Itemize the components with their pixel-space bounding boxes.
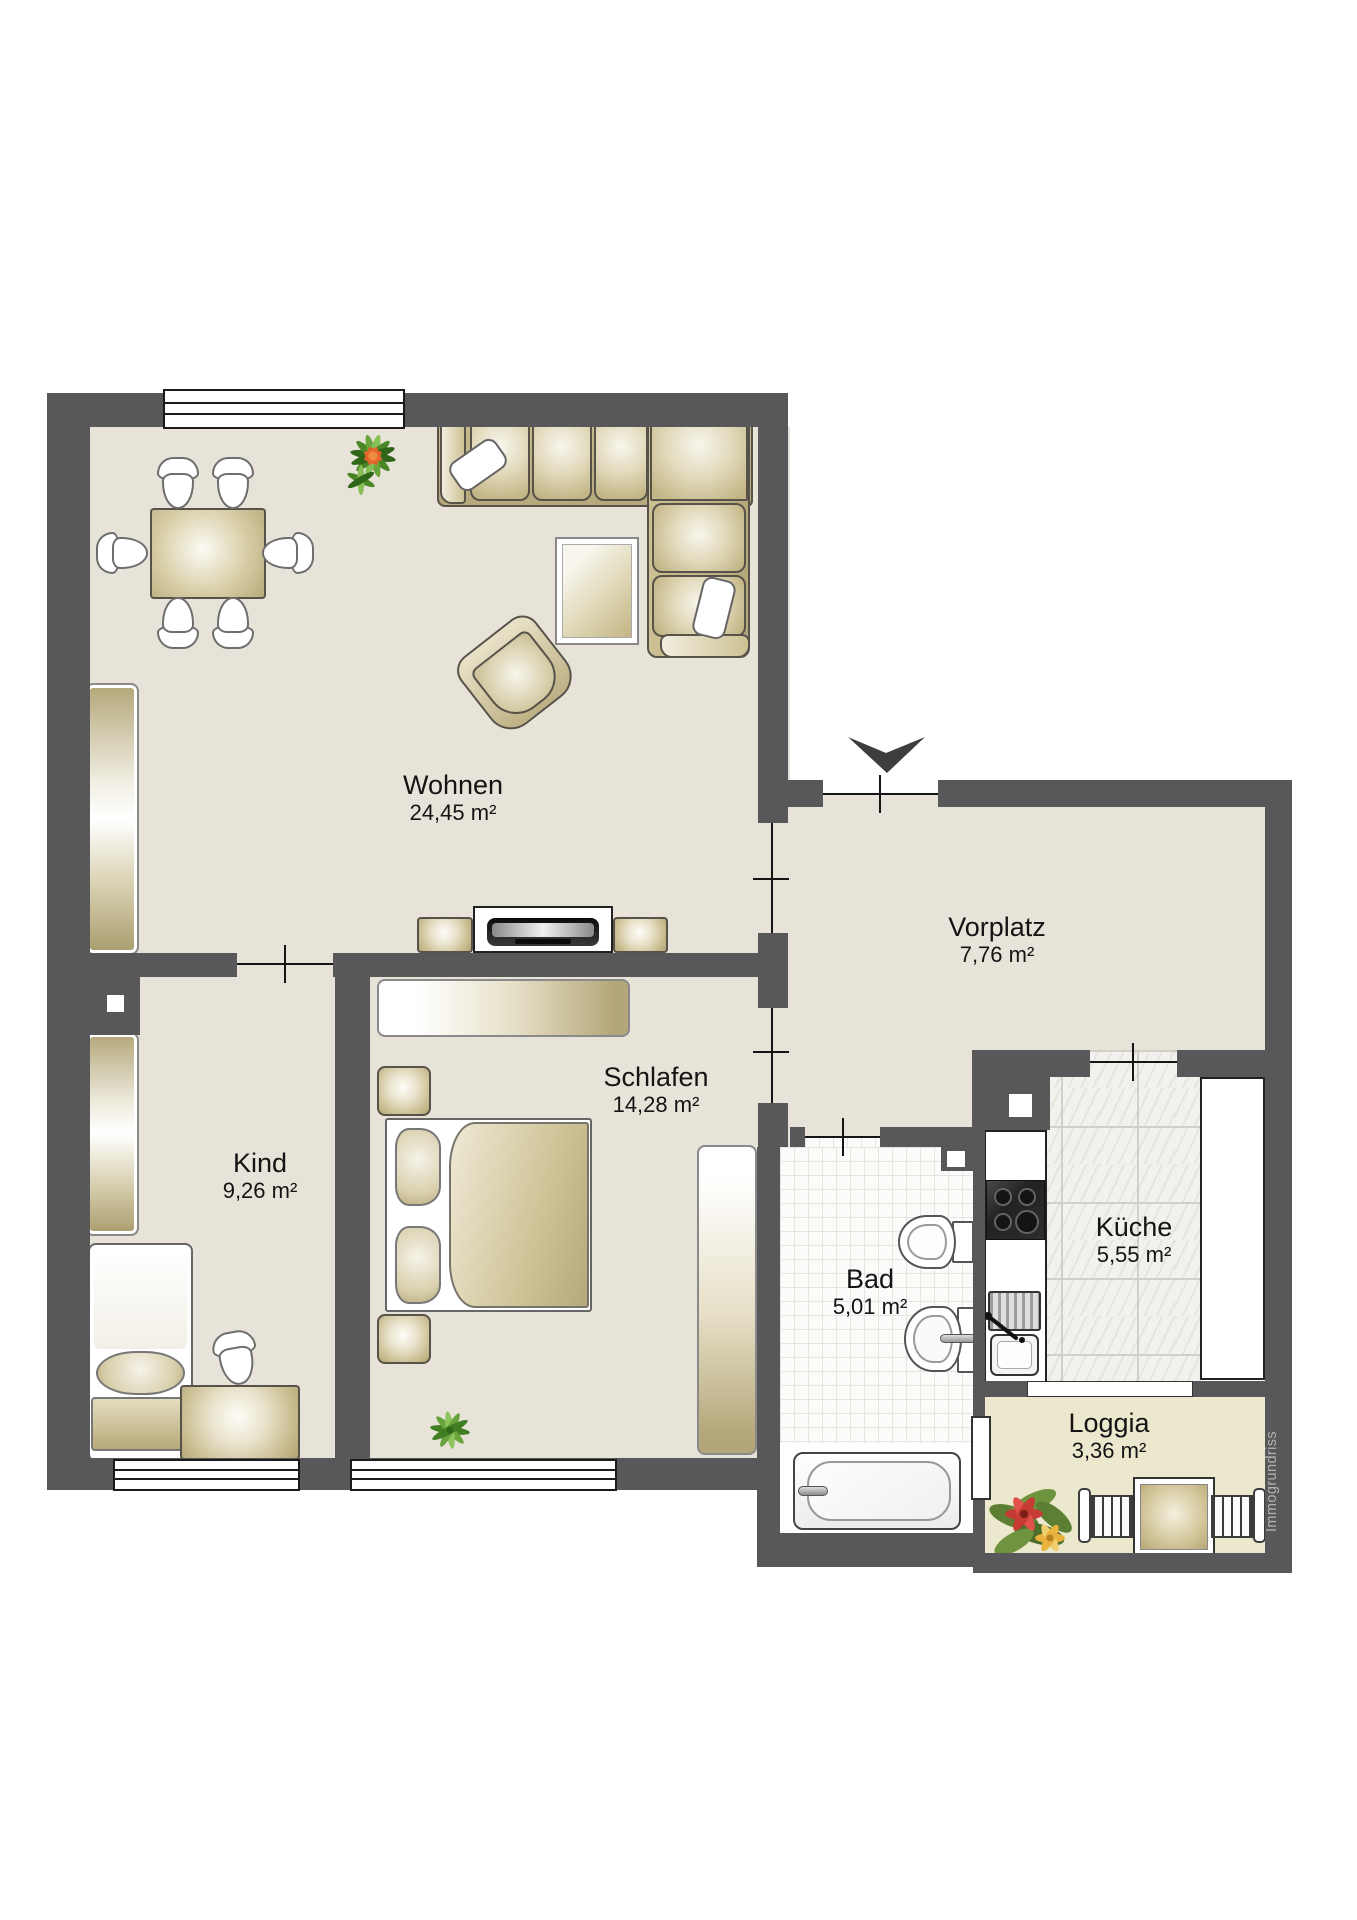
faucet-icon <box>798 1486 828 1496</box>
double-bed <box>385 1118 592 1312</box>
door-opening-tick <box>879 775 881 813</box>
wall <box>335 953 370 1490</box>
pillow <box>395 1128 441 1206</box>
wall <box>938 780 1292 807</box>
wardrobe <box>697 1145 757 1455</box>
wall <box>333 953 780 977</box>
door-opening-tick <box>1132 1043 1134 1081</box>
toilet <box>898 1215 956 1269</box>
faucet-icon <box>940 1334 976 1343</box>
nightstand <box>377 1314 431 1364</box>
dresser <box>377 979 630 1037</box>
room-area: 7,76 m² <box>887 942 1107 968</box>
loggia-chair <box>1091 1495 1133 1538</box>
wall <box>790 1127 805 1147</box>
door-opening-tick <box>284 945 286 983</box>
door-opening-tick <box>753 878 789 880</box>
single-bed <box>88 1243 193 1462</box>
room-label-schlafen: Schlafen 14,28 m² <box>546 1062 766 1118</box>
room-name: Schlafen <box>546 1062 766 1092</box>
tap-icon <box>984 1310 1034 1356</box>
wall <box>972 1050 1050 1130</box>
pillow <box>96 1351 185 1395</box>
room-label-vorplatz: Vorplatz 7,76 m² <box>887 912 1107 968</box>
coffee-table <box>555 537 639 645</box>
room-area: 24,45 m² <box>343 800 563 826</box>
shaft <box>1009 1094 1032 1117</box>
plant-icon <box>341 418 405 502</box>
bathtub <box>793 1452 961 1530</box>
dining-chair <box>211 457 255 509</box>
tv-cabinet <box>417 917 473 953</box>
wall <box>757 1533 985 1567</box>
room-area: 3,36 m² <box>999 1438 1219 1464</box>
dining-chair <box>262 531 314 575</box>
wall <box>973 1498 985 1535</box>
dining-chair <box>211 597 255 649</box>
room-name: Kind <box>150 1148 370 1178</box>
loggia-table <box>1133 1477 1215 1557</box>
loggia-window <box>971 1416 991 1500</box>
door-opening-tick <box>842 1118 844 1156</box>
sofa-cushion <box>652 503 746 573</box>
sideboard <box>85 683 139 955</box>
floor-plan: Wohnen 24,45 m² Vorplatz 7,76 m² Schlafe… <box>0 0 1357 1920</box>
blanket <box>91 1397 190 1451</box>
room-area: 5,55 m² <box>1024 1242 1244 1268</box>
dining-chair <box>96 531 148 575</box>
room-area: 9,26 m² <box>150 1178 370 1204</box>
dining-chair <box>156 597 200 649</box>
door-opening <box>771 1008 773 1103</box>
desk-chair <box>209 1327 264 1388</box>
room-label-kueche: Küche 5,55 m² <box>1024 1212 1244 1268</box>
shaft <box>107 995 124 1012</box>
dining-table <box>150 508 266 599</box>
tv-cabinet <box>613 917 668 953</box>
loggia-chair <box>1211 1495 1253 1538</box>
wall <box>1050 1050 1090 1077</box>
entrance-arrow-icon <box>848 737 925 773</box>
window <box>350 1459 617 1491</box>
window <box>163 389 405 429</box>
wall <box>880 1127 977 1147</box>
room-area: 5,01 m² <box>760 1294 980 1320</box>
room-name: Vorplatz <box>887 912 1107 942</box>
wall <box>780 780 823 807</box>
plant-icon <box>420 1398 480 1462</box>
room-name: Wohnen <box>343 770 563 800</box>
sofa-armrest <box>660 634 750 658</box>
room-name: Küche <box>1024 1212 1244 1242</box>
poinsettia-icon <box>984 1472 1080 1566</box>
pillow <box>395 1226 441 1304</box>
tv-icon <box>487 918 599 946</box>
door-opening-tick <box>753 1051 789 1053</box>
wall <box>47 393 90 1490</box>
shaft <box>947 1151 965 1167</box>
dining-chair <box>156 457 200 509</box>
room-label-kind: Kind 9,26 m² <box>150 1148 370 1204</box>
wall <box>973 1553 1292 1573</box>
room-label-bad: Bad 5,01 m² <box>760 1264 980 1320</box>
sideboard <box>85 1032 139 1236</box>
room-label-loggia: Loggia 3,36 m² <box>999 1408 1219 1464</box>
desk <box>180 1385 300 1460</box>
wall <box>758 393 788 823</box>
watermark: Immogrundriss <box>1264 1431 1280 1532</box>
window <box>113 1459 300 1491</box>
wall <box>1177 1050 1265 1077</box>
room-name: Bad <box>760 1264 980 1294</box>
duvet <box>449 1122 589 1308</box>
wall <box>90 953 237 977</box>
room-name: Loggia <box>999 1408 1219 1438</box>
room-label-wohnen: Wohnen 24,45 m² <box>343 770 563 826</box>
wall <box>47 393 788 427</box>
nightstand <box>377 1066 431 1116</box>
loggia-door <box>1027 1381 1193 1397</box>
room-area: 14,28 m² <box>546 1092 766 1118</box>
